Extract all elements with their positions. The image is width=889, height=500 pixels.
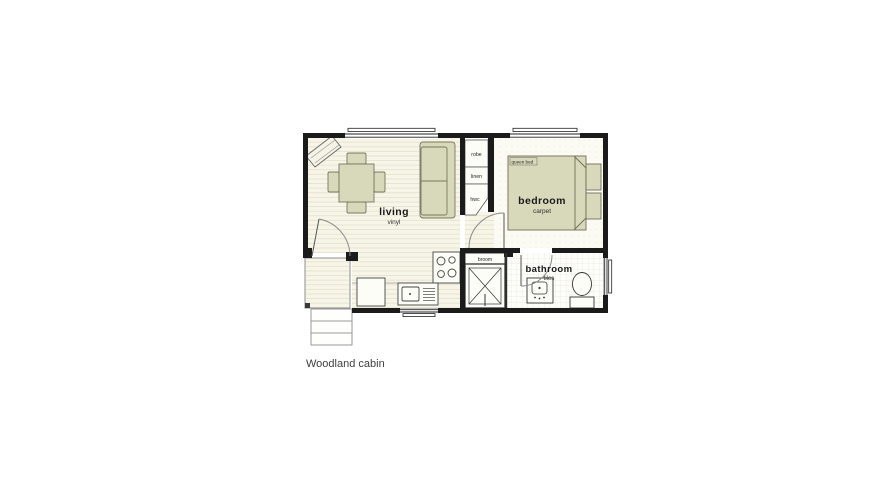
closet-label-linen: linen [471,174,482,180]
jamb-entry-right [346,252,358,261]
floor-label-bathroom: tiles [544,276,555,282]
exterior-wall-bottom [352,308,608,313]
exterior-wall-left [303,133,308,258]
closet-label-robe: robe [471,152,481,158]
stove [433,252,460,283]
interior-wall-shower-west [460,253,465,308]
bed-label: queen bed [512,159,534,164]
toilet-cistern [570,297,594,308]
closet-label-broom: broom [478,257,492,263]
dining-chair-left [328,172,339,192]
window-bathroom [603,258,611,295]
step-1 [311,309,352,321]
floor-label-living: vinyl [387,219,401,226]
porch-and-steps [305,258,352,345]
sink-unit [398,283,438,305]
vanity-tap-1 [534,297,536,299]
window-bedroom [510,128,580,138]
sink-drain [409,293,411,295]
dining-chair-bottom [347,202,366,213]
step-3 [311,333,352,345]
room-label-bathroom: bathroom [525,264,572,275]
room-label-bedroom: bedroom [518,195,566,207]
interior-wall-bath-north-east [552,248,603,253]
bedside-table-top [586,164,601,190]
floorplan-drawing: living vinyl bedroom carpet bathroom til… [0,0,889,500]
floorplan-page: living vinyl bedroom carpet bathroom til… [0,0,889,500]
sofa [420,142,455,218]
room-label-living: living [379,206,409,218]
dining-chair-top [347,153,366,164]
closet-label-hwc: hwc [470,197,480,203]
interior-wall-living-closets [460,138,465,215]
queen-bed [508,156,586,230]
window-living [345,128,438,138]
dining-table [339,164,374,202]
dining-chair-right [374,172,385,192]
bedroom-furniture [508,156,601,230]
porch-corner-post [305,303,310,308]
vanity-tap-3 [543,297,545,299]
bedside-table-bottom [586,193,601,219]
wall-shower-bathroom-divider [505,253,507,308]
jamb-entry-left [303,248,312,258]
porch-deck [305,258,350,308]
toilet-bowl [573,273,592,296]
window-kitchen [400,308,438,316]
vanity-drain [538,287,540,289]
interior-wall-closets-bedroom [488,133,494,212]
vanity-tap-2 [539,298,541,300]
step-2 [311,321,352,333]
caption: Woodland cabin [306,358,385,370]
floor-label-bedroom: carpet [533,208,551,215]
fridge [357,278,385,306]
